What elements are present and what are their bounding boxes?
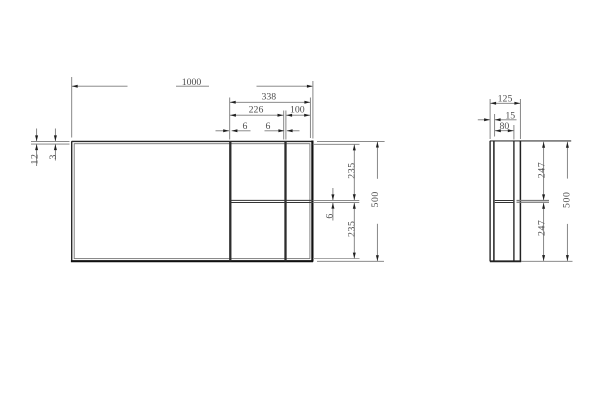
svg-text:15: 15	[505, 111, 515, 122]
svg-text:1000: 1000	[182, 77, 202, 88]
svg-text:3: 3	[48, 154, 59, 159]
svg-text:80: 80	[500, 121, 510, 132]
svg-text:247: 247	[536, 220, 547, 237]
svg-text:235: 235	[347, 220, 358, 237]
svg-text:12: 12	[30, 154, 41, 165]
svg-text:235: 235	[347, 162, 358, 179]
svg-text:100: 100	[290, 104, 305, 115]
svg-text:6: 6	[243, 121, 248, 132]
svg-text:6: 6	[325, 214, 336, 219]
svg-text:500: 500	[561, 192, 572, 209]
svg-text:125: 125	[498, 93, 513, 104]
svg-text:338: 338	[261, 91, 276, 102]
svg-text:247: 247	[536, 162, 547, 179]
svg-text:500: 500	[370, 191, 381, 208]
svg-text:6: 6	[266, 121, 271, 132]
svg-text:226: 226	[249, 104, 264, 115]
